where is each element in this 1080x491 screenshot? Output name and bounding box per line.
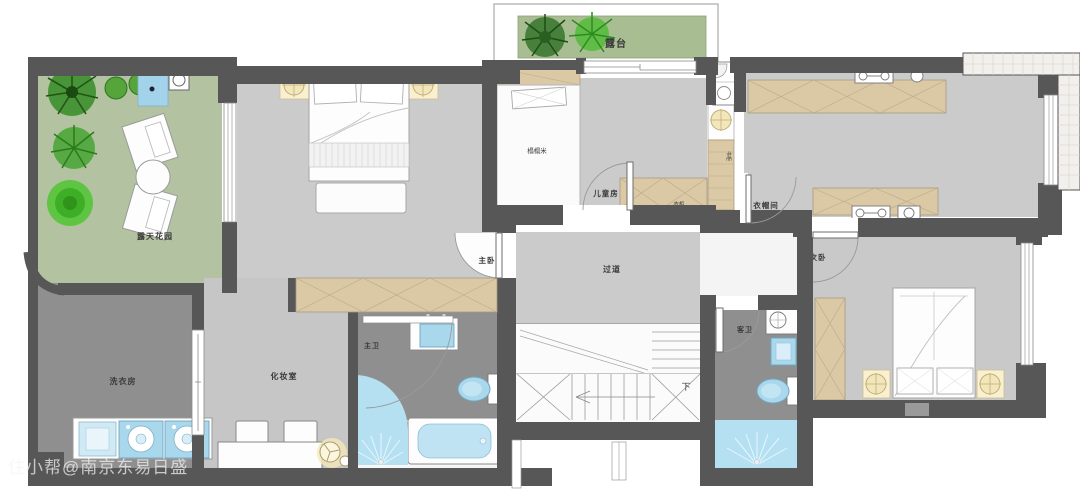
bathtub-icon	[408, 418, 500, 464]
label-cloakroom: 衣帽间	[753, 200, 779, 210]
window-cloakroom-east	[1044, 95, 1058, 185]
room-corridor-floor	[516, 232, 700, 325]
window-second-bedroom-east	[1021, 243, 1033, 365]
second-bedroom-wardrobe	[815, 298, 845, 400]
stairwell-floor	[516, 323, 700, 422]
window-terrace-slider	[584, 61, 696, 73]
floor-plan-svg: 露台	[0, 0, 1080, 491]
label-corridor: 过道	[603, 264, 621, 274]
label-garden: 露天花园	[137, 231, 173, 241]
garden-water-basin	[138, 72, 168, 106]
label-dressing: 化妆室	[271, 371, 298, 381]
vestibule-floor	[700, 233, 800, 298]
sliding-door-laundry	[192, 330, 204, 435]
label-bookcase: 书柜	[725, 151, 732, 161]
master-closet	[296, 278, 497, 312]
washing-machine-icon	[119, 421, 163, 458]
label-terrace: 露台	[605, 37, 627, 50]
watermark: 住小帮@南京东易日盛	[8, 458, 188, 477]
label-kids-room: 儿童房	[592, 188, 619, 198]
label-master-bath: 主卫	[364, 341, 380, 350]
tatami-platform	[497, 85, 580, 207]
label-laundry: 洗衣房	[110, 376, 137, 386]
floor-plan-canvas: 露台	[0, 0, 1080, 491]
label-stairs-down: 下	[681, 382, 690, 392]
window-master-west	[224, 103, 236, 222]
hanger-rod-fixture	[852, 206, 920, 220]
toilet-icon	[757, 377, 798, 405]
label-tatami: 榻榻米	[527, 146, 547, 155]
cloakroom-wardrobe-top	[748, 80, 946, 113]
shower-area	[715, 420, 797, 468]
laundry-appliances	[73, 418, 212, 459]
label-guest-bath: 客卫	[736, 325, 753, 334]
label-master-bedroom: 主卧	[479, 255, 496, 265]
